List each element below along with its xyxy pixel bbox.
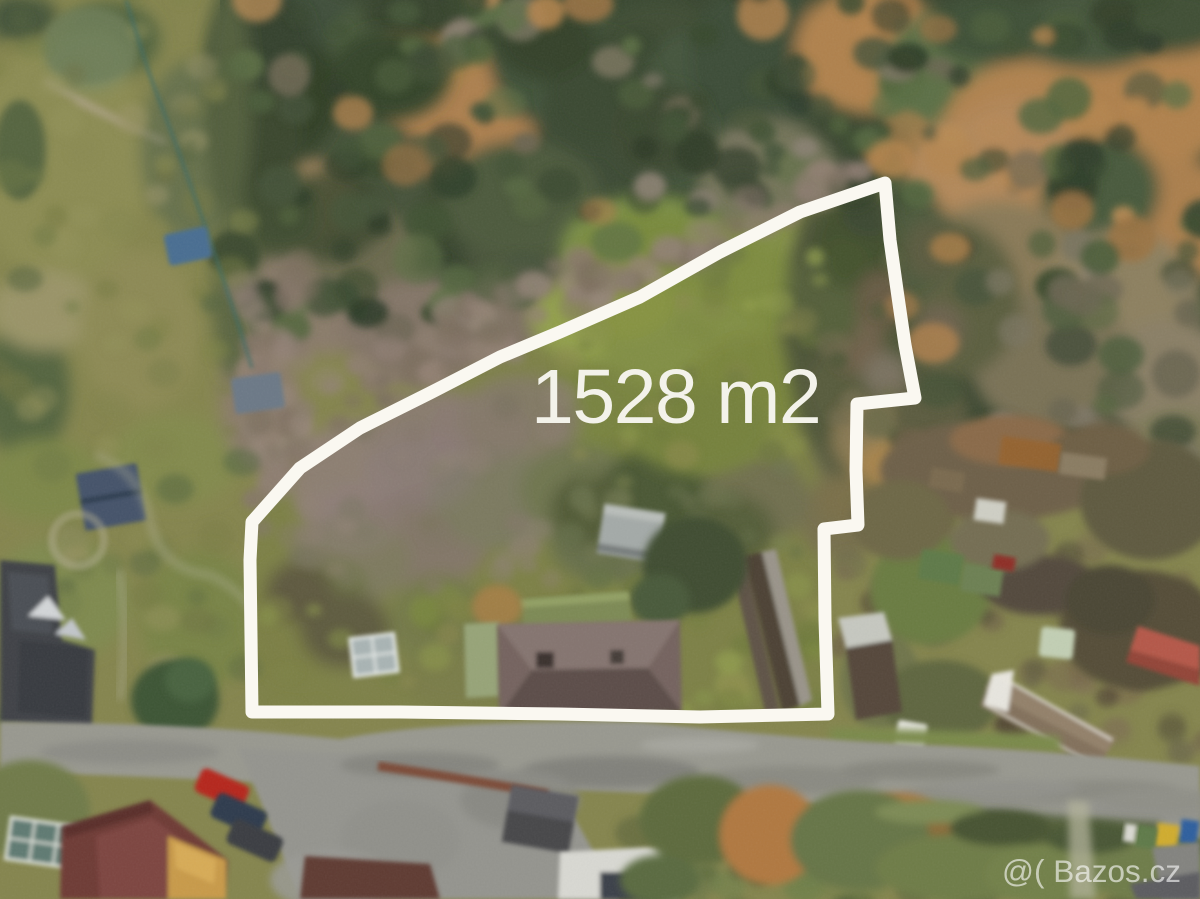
svg-text:1528 m2: 1528 m2 xyxy=(531,354,820,440)
svg-text:@( Bazos.cz: @( Bazos.cz xyxy=(1002,853,1181,889)
